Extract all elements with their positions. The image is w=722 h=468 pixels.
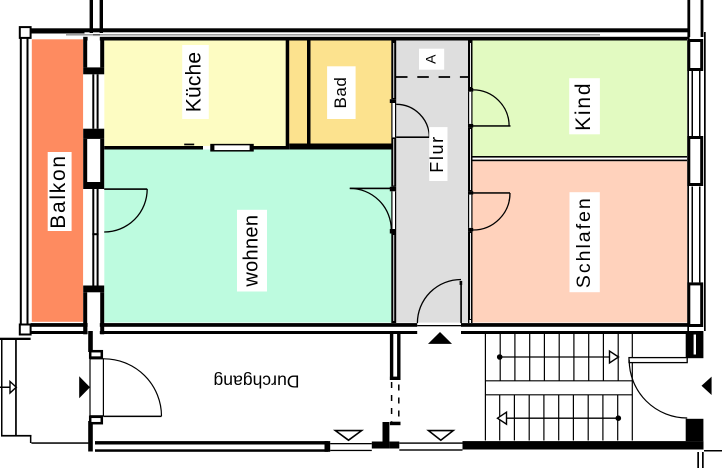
svg-text:Durchgang: Durchgang	[213, 372, 299, 392]
svg-text:Bad: Bad	[331, 77, 350, 109]
svg-text:Flur: Flur	[427, 135, 447, 172]
svg-text:Schlafen: Schlafen	[573, 196, 595, 288]
svg-text:Kind: Kind	[572, 82, 595, 131]
svg-text:wohnen: wohnen	[241, 215, 263, 288]
svg-text:Küche: Küche	[183, 52, 206, 113]
svg-text:Balkon: Balkon	[47, 154, 70, 228]
svg-text:A: A	[423, 54, 439, 64]
